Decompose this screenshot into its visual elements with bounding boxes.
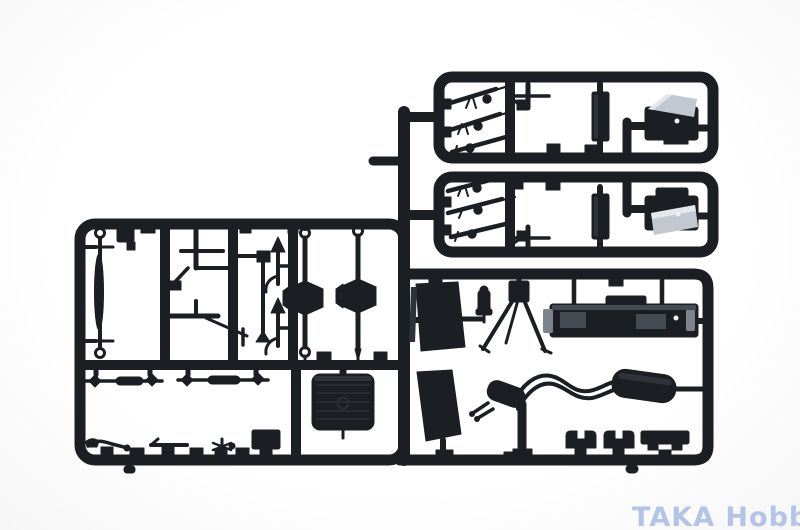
gate-tab [546, 180, 560, 190]
small-fitting-parts [85, 430, 280, 457]
gate-tab [317, 352, 331, 361]
bracket-blob-part [117, 227, 135, 250]
gate-nub [626, 465, 638, 473]
gate-tab [609, 277, 623, 286]
rifle-parts-a [441, 85, 514, 155]
mg-mount-part-a [513, 84, 549, 110]
gate-tab [374, 352, 387, 361]
clip-parts [566, 431, 634, 458]
seat-part-lower [417, 370, 461, 459]
gate-tab [240, 224, 251, 233]
mg-mount-part-b [513, 227, 549, 247]
sprue-illustration [0, 0, 800, 530]
resonator [485, 378, 528, 410]
sprue-photo: TAKA Hobby [0, 0, 800, 530]
gate-nub [124, 466, 135, 473]
gate-tab [512, 180, 523, 189]
gate-tab [141, 223, 155, 233]
rifle-parts-b [441, 175, 515, 241]
angle-rod-part [234, 251, 270, 342]
sprue-frame [80, 77, 713, 460]
gate-tab [288, 224, 298, 233]
leaf-spring-part [85, 229, 113, 358]
gate-tab [585, 145, 597, 154]
gate-tab [547, 144, 560, 154]
step-bracket-part [168, 226, 229, 290]
watermark: TAKA Hobby [632, 502, 800, 530]
